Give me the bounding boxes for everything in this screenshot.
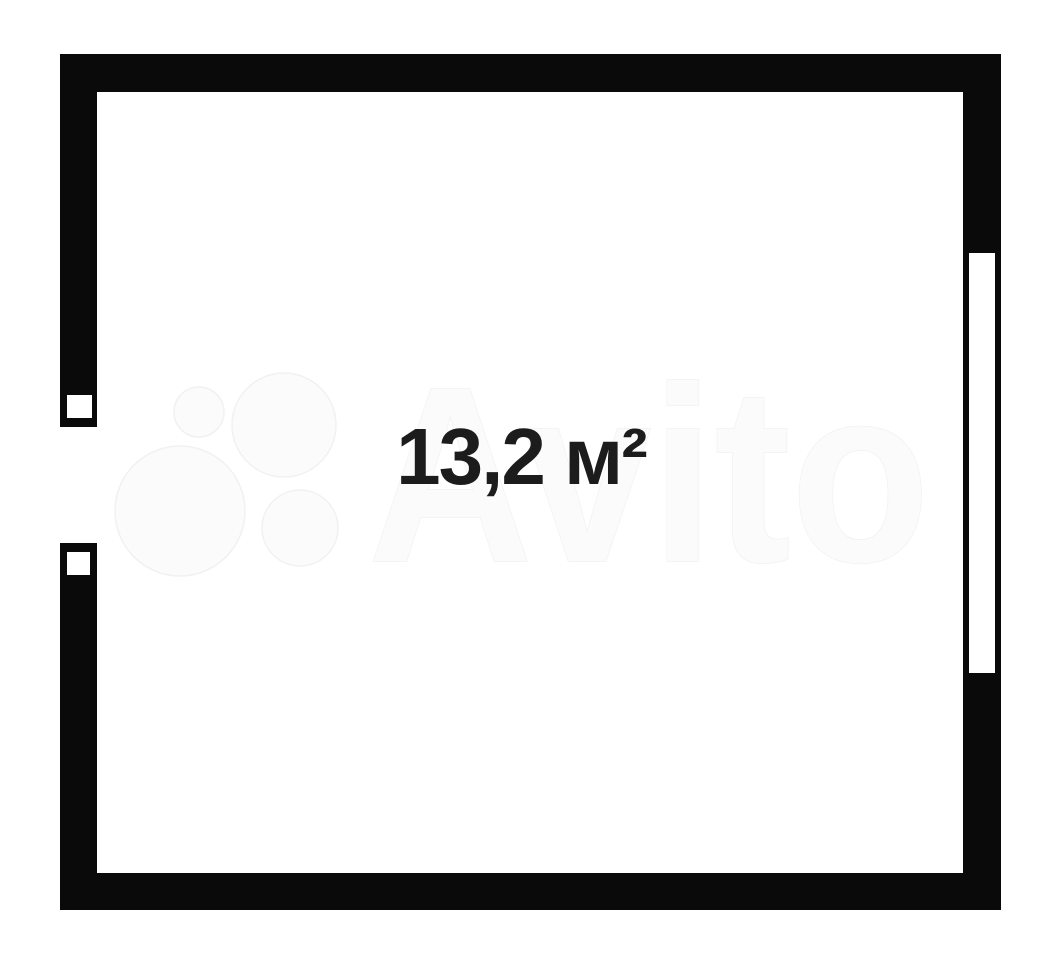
wall-bottom [60,873,1001,910]
room-area-label: 13,2 м² [221,417,821,497]
wall-left-upper [60,54,97,427]
window [969,253,995,673]
door-jamb-lower [67,552,90,575]
floorplan-image: Avito 13,2 м² [0,0,1049,960]
door-opening [60,427,97,543]
wall-top [60,54,1001,92]
door-jamb-upper [67,395,92,418]
wall-left-lower [60,543,97,910]
